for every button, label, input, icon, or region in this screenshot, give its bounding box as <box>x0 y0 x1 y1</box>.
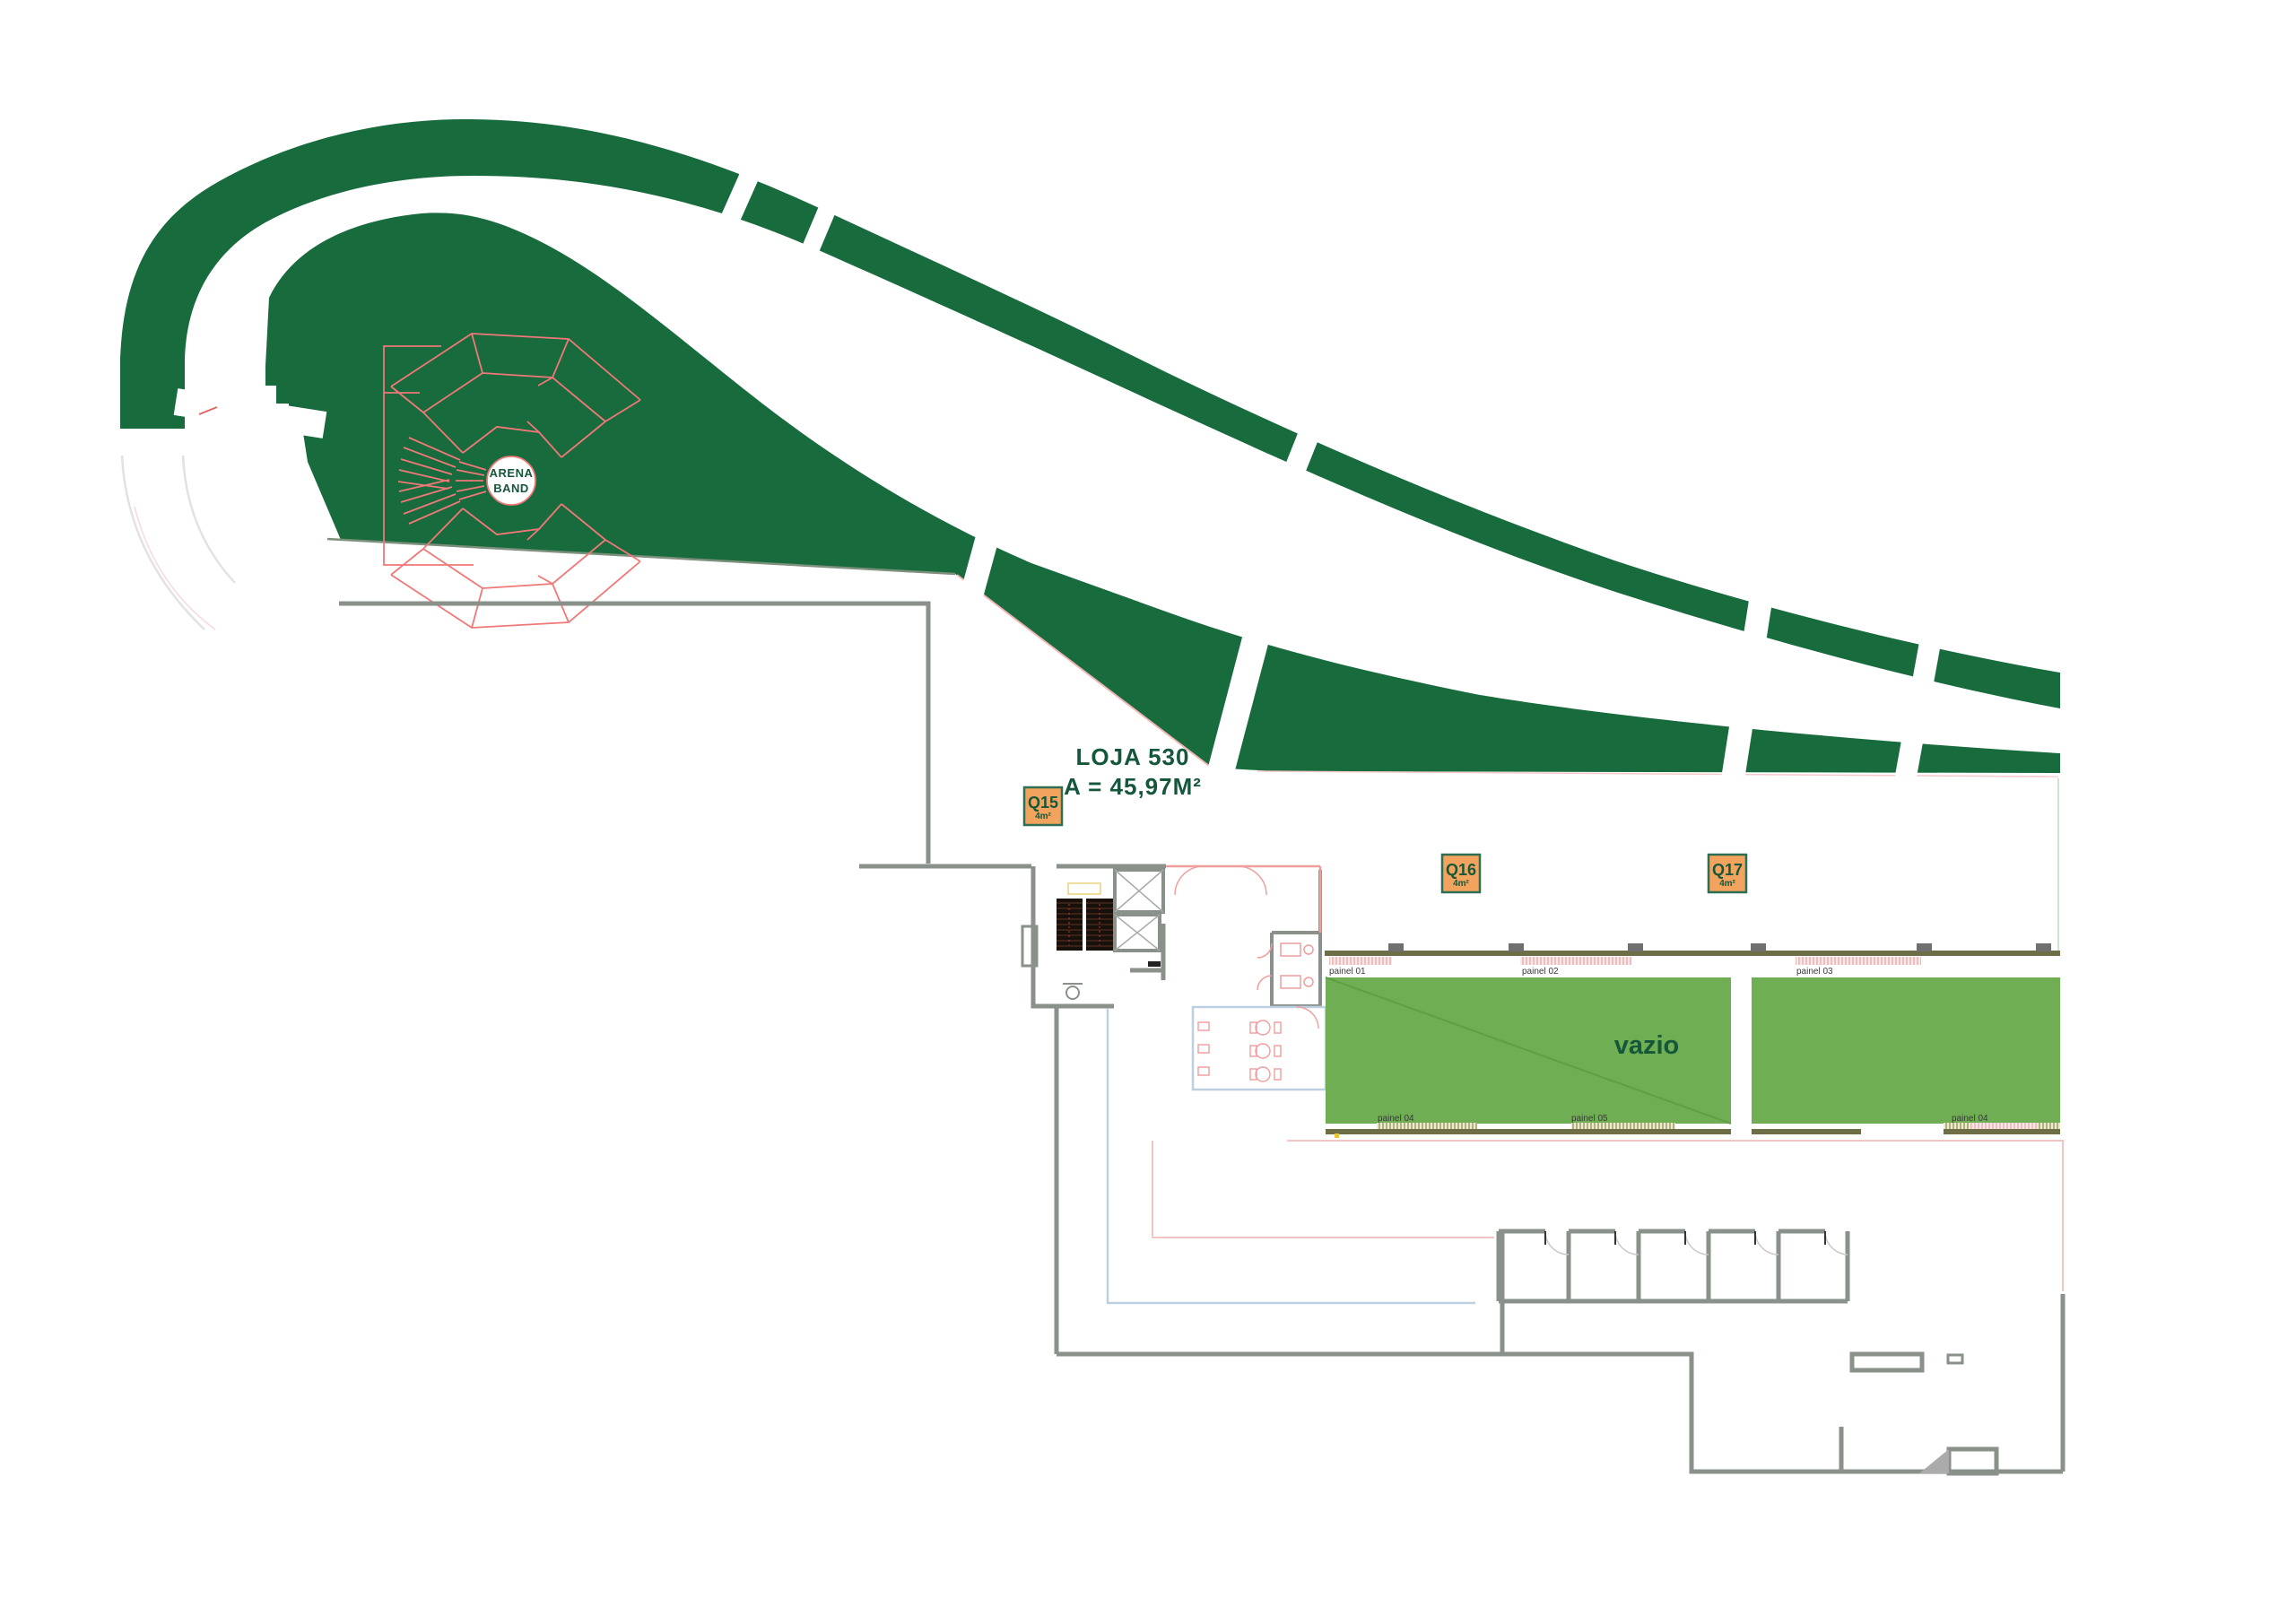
pink-guide <box>1287 1141 2063 1291</box>
survey-dot <box>1335 1133 1339 1138</box>
vazio-room-2 <box>1752 977 2060 1124</box>
door-swing <box>1238 866 1266 895</box>
painel-label-top-2: painel 02 <box>1522 967 1559 977</box>
loja-title: LOJA 530 A = 45,97M² <box>1064 743 1202 800</box>
bottom-right-room <box>1841 1354 1996 1473</box>
column <box>1388 943 2051 951</box>
arena-title-line1: ARENA <box>490 466 534 480</box>
kiosk-id: Q16 <box>1446 861 1476 879</box>
painel-label-bottom-3: painel 04 <box>1952 1114 1988 1124</box>
painel-label-top-3: painel 03 <box>1796 967 1833 977</box>
door-threshold <box>1148 961 1161 967</box>
ghost-arc <box>122 456 204 630</box>
walkway-inner-area <box>265 213 2060 773</box>
door-swing <box>1175 866 1204 895</box>
mall-walkway <box>120 119 2060 953</box>
table-set <box>1198 1007 1318 1081</box>
stair-flight <box>1057 899 1083 951</box>
painel-label-bottom-1: painel 04 <box>1378 1114 1414 1124</box>
painel-label-bottom-2: painel 05 <box>1571 1114 1608 1124</box>
pink-guide <box>1152 1141 1494 1238</box>
stair-flight <box>1086 899 1113 951</box>
floor-plan-canvas: ARENA BAND <box>0 0 2296 1624</box>
ghost-arc-pink <box>135 507 215 630</box>
painel-label-top-1: painel 01 <box>1329 967 1366 977</box>
seating-room-outline <box>1193 1007 1326 1090</box>
counter-outline <box>1852 1354 1922 1370</box>
kiosk-id: Q17 <box>1712 861 1743 879</box>
arena-area-wall <box>339 604 928 864</box>
loja-front-wall <box>1166 866 1320 933</box>
wc-walls <box>1272 870 1320 1006</box>
painel-hatch-pink <box>1520 957 1631 965</box>
loja-name: LOJA 530 <box>1076 743 1190 770</box>
kiosk-q15: Q15 4m² <box>1024 787 1062 825</box>
loja-partitions <box>1166 866 1320 990</box>
shops-row <box>1499 1231 1848 1301</box>
seating-room <box>1193 1007 1326 1090</box>
stairwell <box>1057 883 1113 951</box>
small-fixture <box>1948 1355 1962 1363</box>
shop-door-swing <box>1545 1231 1848 1255</box>
arena-stage-circle <box>487 456 535 505</box>
wc-fixtures <box>1257 943 1313 990</box>
mop-sink-icon <box>1063 984 1083 999</box>
kiosk-size: 4m² <box>1719 879 1735 889</box>
ghost-arc <box>183 456 235 583</box>
stair-landing-outline <box>1068 883 1100 894</box>
painel-hatch-pink <box>1796 957 1921 965</box>
loja-area: A = 45,97M² <box>1064 773 1202 800</box>
exhibit-rooms <box>1325 943 2060 1138</box>
kiosk-q17: Q17 4m² <box>1709 855 1746 892</box>
arena-title-line2: BAND <box>493 482 529 495</box>
painel-hatch-pink <box>1329 957 1392 965</box>
shop-divider <box>1499 1231 1848 1301</box>
kiosk-id: Q15 <box>1028 794 1058 812</box>
kiosk-size: 4m² <box>1035 812 1051 821</box>
kiosk-q16: Q16 4m² <box>1442 855 1480 892</box>
vazio-label: vazio <box>1614 1031 1680 1060</box>
kiosk-size: 4m² <box>1453 879 1469 889</box>
